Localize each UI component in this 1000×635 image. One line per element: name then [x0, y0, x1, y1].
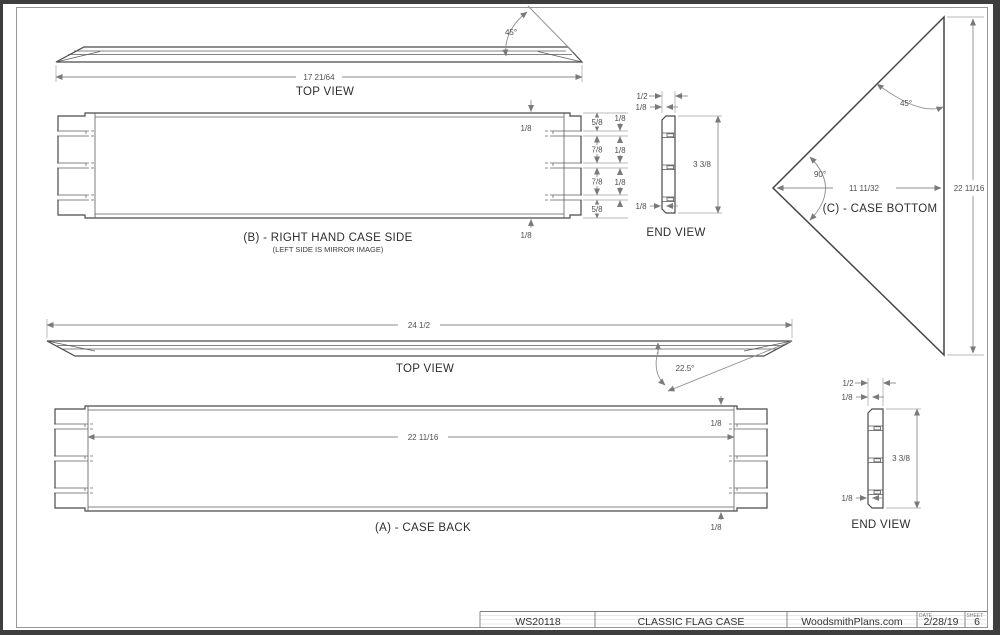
- dim-case-bottom-height: 22 11/16: [954, 184, 985, 193]
- view-case-bottom: 45° 90° 11 11/32 22 11/16 (C) - CASE BOT…: [773, 17, 985, 355]
- view-top-view-back: 24 1/2 22.5° TOP VIEW: [47, 319, 792, 391]
- case-side-ext-lines: [583, 113, 628, 218]
- title-block-date-value: 2/28/19: [923, 616, 958, 628]
- dim-seg-top: 5/8: [591, 118, 603, 127]
- dim-slot2: 1/8: [614, 146, 626, 155]
- view-end-view-back: 1/2 1/8 3 3/8 1/8 END VIEW: [841, 378, 921, 531]
- dim-seg-mid2: 7/8: [591, 178, 603, 187]
- label-top-view-side: TOP VIEW: [296, 86, 354, 98]
- plan-canvas: 45° 17 21/64 TOP VIEW: [0, 0, 1000, 635]
- title-block-plan-number: WS20118: [515, 616, 560, 628]
- case-bottom-height-dim: 22 11/16: [947, 17, 985, 355]
- dim-back-lip-top: 1/8: [710, 419, 722, 428]
- dim-17-21-64: 17 21/64: [303, 73, 335, 82]
- label-end-view-back: END VIEW: [851, 519, 910, 531]
- label-end-view-side: END VIEW: [646, 227, 705, 239]
- dim-lip-bottom: 1/8: [520, 231, 532, 240]
- dim-angle-hyp: 45°: [900, 99, 912, 108]
- dim-seg-mid1: 7/8: [591, 146, 603, 155]
- dim-length-back: 24 1/2: [47, 319, 792, 338]
- label-case-side-note: (LEFT SIDE IS MIRROR IMAGE): [273, 245, 384, 254]
- dim-endview-side-height: 3 3/8: [693, 160, 711, 169]
- title-block-publisher: WoodsmithPlans.com: [801, 616, 903, 628]
- dim-endview-side-rabbet-top: 1/8: [635, 103, 647, 112]
- title-block-plan-title: CLASSIC FLAG CASE: [638, 616, 745, 628]
- dim-case-bottom-depth: 11 11/32: [849, 184, 880, 193]
- view-case-back: 22 11/16 1/8 1/8 (A) - CASE BACK: [54, 396, 769, 534]
- dim-endview-side-rabbet-bottom: 1/8: [635, 202, 647, 211]
- label-case-bottom: (C) - CASE BOTTOM: [823, 203, 938, 215]
- drawing-sheet: 45° 17 21/64 TOP VIEW: [0, 0, 1000, 635]
- sheet-inner-border: [17, 8, 988, 628]
- dim-seg-bottom: 5/8: [591, 205, 603, 214]
- dim-back-lip-bottom: 1/8: [710, 523, 722, 532]
- dim-angle-45: 45°: [505, 28, 517, 37]
- dim-slot1: 1/8: [614, 114, 626, 123]
- label-case-side: (B) - RIGHT HAND CASE SIDE: [243, 232, 412, 244]
- title-block: WS20118 CLASSIC FLAG CASE WoodsmithPlans…: [480, 612, 988, 629]
- label-case-back: (A) - CASE BACK: [375, 522, 471, 534]
- dim-lip-top: 1/8: [520, 124, 532, 133]
- dim-case-back-inner: 22 11/16: [408, 433, 439, 442]
- case-side-segment-dims: 5/8 7/8 7/8 5/8: [588, 113, 605, 218]
- label-top-view-back: TOP VIEW: [396, 363, 454, 375]
- view-top-view-side: 45° 17 21/64 TOP VIEW: [56, 6, 582, 98]
- view-case-side: 1/8 1/8 5/8 7/8 7/8 5/8: [57, 100, 629, 254]
- dim-24-1-2: 24 1/2: [408, 321, 431, 330]
- dim-endview-back-rabbet-bottom: 1/8: [841, 494, 853, 503]
- title-block-sheet-value: 6: [974, 616, 980, 628]
- dim-endview-side-thickness: 1/2: [636, 92, 648, 101]
- end-view-side-dims: 1/2 1/8 3 3/8 1/8: [635, 91, 722, 213]
- dim-slot3: 1/8: [614, 178, 626, 187]
- dim-endview-back-rabbet-top: 1/8: [841, 393, 853, 402]
- dim-angle-22-5: 22.5°: [676, 364, 695, 373]
- dim-length-side: 17 21/64: [56, 65, 582, 82]
- view-end-view-side: 1/2 1/8 3 3/8 1/8 END VIEW: [635, 91, 722, 239]
- dim-endview-back-height: 3 3/8: [892, 454, 910, 463]
- dim-endview-back-thickness: 1/2: [842, 379, 854, 388]
- sheet-frame: [0, 0, 1000, 635]
- case-side-slot-dims: 1/8 1/8 1/8: [614, 114, 626, 207]
- dim-angle-apex: 90°: [814, 170, 826, 179]
